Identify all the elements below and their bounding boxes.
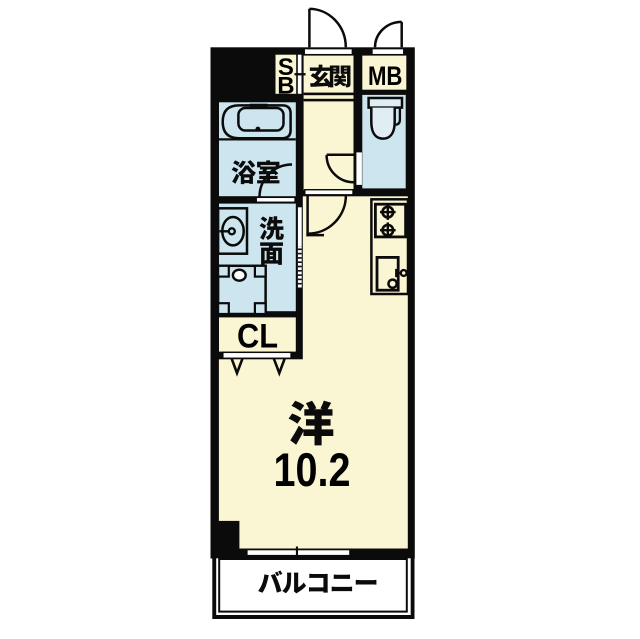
svg-text:CL: CL	[237, 317, 278, 355]
svg-text:B: B	[277, 72, 294, 99]
svg-text:10.2: 10.2	[274, 443, 351, 496]
svg-text:MB: MB	[368, 61, 403, 91]
